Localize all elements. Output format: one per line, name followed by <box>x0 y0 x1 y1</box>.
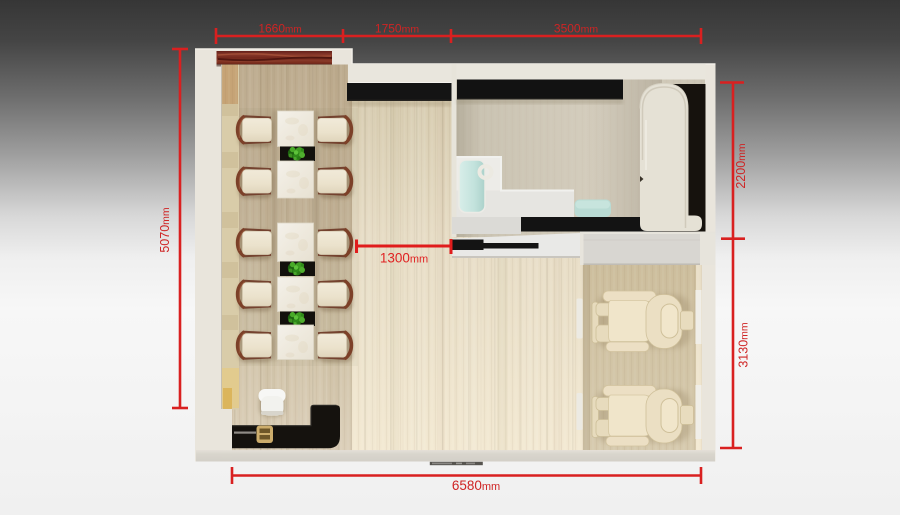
svg-text:1750mm: 1750mm <box>375 22 419 36</box>
svg-text:3130mm: 3130mm <box>737 322 751 368</box>
svg-text:3500mm: 3500mm <box>554 22 598 36</box>
svg-text:5070mm: 5070mm <box>158 207 172 253</box>
svg-text:2200mm: 2200mm <box>734 143 748 189</box>
svg-text:1300mm: 1300mm <box>380 251 428 266</box>
svg-text:6580mm: 6580mm <box>452 478 500 493</box>
svg-text:1660mm: 1660mm <box>258 22 301 36</box>
